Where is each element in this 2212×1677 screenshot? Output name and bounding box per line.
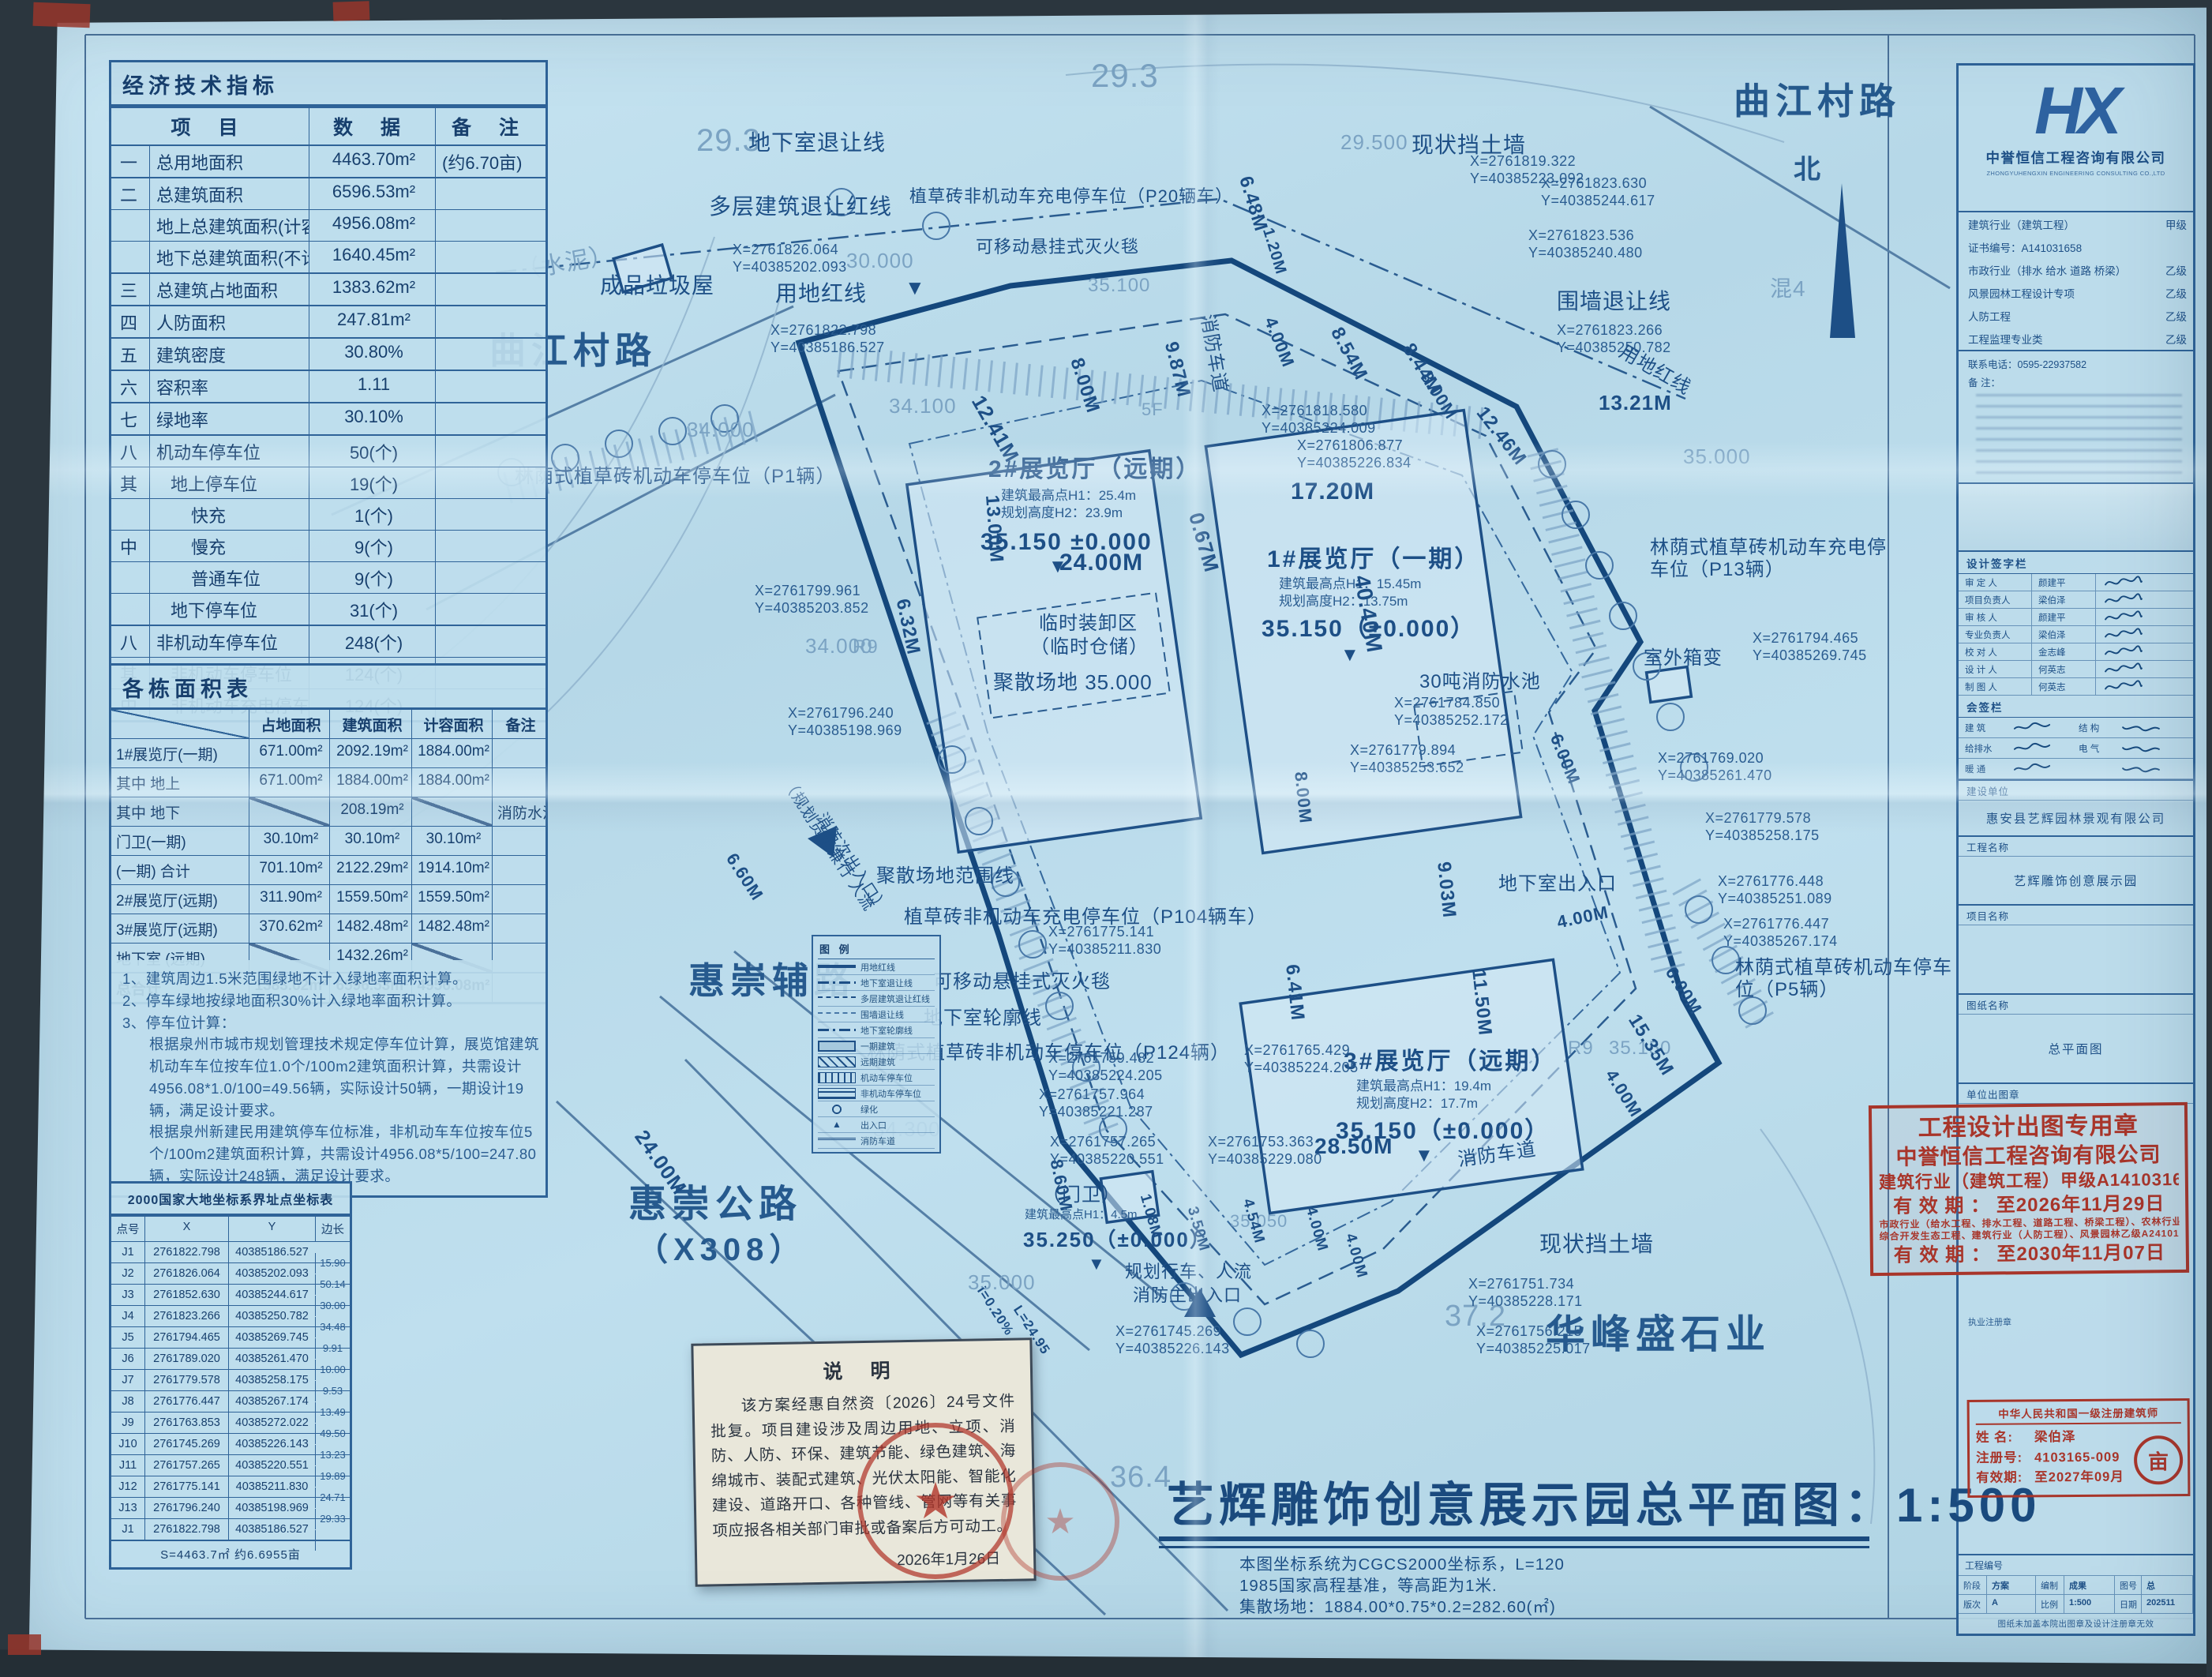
owner-label: 建设单位 xyxy=(1959,779,2193,801)
coordinate-rows: J1 2761822.798 40385186.527 15.90 J2 276… xyxy=(111,1241,350,1540)
contact-remarks: 联系电话：0595-22937582 备 注： xyxy=(1959,351,2193,484)
red-tape-mark xyxy=(333,1,370,21)
legend-swatch-icon xyxy=(818,981,856,984)
plan-annotation: X=2761753.363 xyxy=(1208,1134,1314,1150)
project-value: 艺辉雕饰创意展示园 xyxy=(1959,857,2193,904)
legend-item: 地下室轮廓线 xyxy=(818,1022,935,1038)
coordinate-row: J6 2761789.020 40385261.470 10.00 xyxy=(111,1348,350,1369)
coordinate-table-title: 2000国家大地坐标系界址点坐标表 xyxy=(109,1181,352,1214)
plan-annotation: Y=40385253.652 xyxy=(1350,760,1464,776)
drawing-subnote: 集散场地：1884.00*0.75*0.2=282.60(㎡) xyxy=(1239,1596,1565,1618)
contact-phone: 联系电话：0595-22937582 xyxy=(1959,351,2193,373)
title-underline xyxy=(1159,1536,1869,1541)
plan-annotation: 6.32M xyxy=(891,597,924,657)
plan-annotation: 35.250（±0.000） xyxy=(1023,1229,1212,1252)
plan-annotation: 2#展览厅（远期） xyxy=(988,456,1202,484)
drawing-name-value: 总平面图 xyxy=(1959,1015,2193,1082)
plan-annotation: 植草砖非机动车充电停车位（P20辆车） xyxy=(909,186,1233,206)
qualification-row: 风景园林工程设计专项 乙级 xyxy=(1959,281,2193,304)
countersign-row: 建 筑 结 构 xyxy=(1959,718,2193,738)
economic-row: 中 慢充 9(个) xyxy=(111,530,546,561)
legend-swatch-icon xyxy=(818,1120,856,1131)
coordinate-row: J9 2761763.853 40385272.022 49.50 xyxy=(111,1412,350,1433)
title-underline-2 xyxy=(1159,1546,1869,1548)
coordinate-row: J10 2761745.269 40385226.143 13.23 xyxy=(111,1433,350,1454)
footer-cell-value: 方案 xyxy=(1987,1576,2036,1595)
coordinate-table-footer: S=4463.7㎡ 约6.6955亩 xyxy=(111,1540,350,1567)
area-table-header: 占地面积 建筑面积 计容面积 备注 xyxy=(111,710,546,738)
plan-annotation: 0.67M xyxy=(1183,510,1223,576)
area-row: (一期) 合计 701.10m² 2122.29m² 1914.10m² xyxy=(111,855,546,884)
economic-row: 三 总建筑占地面积 1383.62m² xyxy=(111,272,546,305)
company-name: 中誉恒信工程咨询有限公司 xyxy=(1959,148,2193,167)
coordinate-table: 2000国家大地坐标系界址点坐标表 点号 X Y 边长 J1 2761822.7… xyxy=(109,1181,352,1570)
plan-annotation: 29.500 xyxy=(1340,131,1408,155)
economic-row: 六 容积率 1.11 xyxy=(111,370,546,402)
signature-row: 设 计 人 何英志 xyxy=(1959,661,2193,678)
plan-annotation: 34.000 xyxy=(687,418,755,442)
footer-cell-label: 图号 xyxy=(2115,1576,2142,1595)
registration-seal-label: 执业注册章 xyxy=(1968,1315,2011,1328)
owner-value: 惠安县艺辉园林景观有限公司 xyxy=(1959,801,2193,835)
plan-annotation: ▼ xyxy=(1415,1145,1434,1167)
footer-cell-label: 版次 xyxy=(1959,1595,1987,1614)
footer-cell-label: 日期 xyxy=(2115,1595,2142,1614)
area-row: 其中 地上 671.00m² 1884.00m² 1884.00m² xyxy=(111,767,546,797)
plan-annotation: Y=40385224.009 xyxy=(1262,420,1376,437)
qualifications: 建筑行业（建筑工程） 甲级 证书编号：A141031658 市政行业（排水 给水… xyxy=(1959,212,2193,351)
economic-table-title: 经济技术指标 xyxy=(109,60,548,104)
plan-annotation: 围墙退让线 xyxy=(1557,289,1671,314)
plan-annotation: Y=40385202.093 xyxy=(733,259,847,276)
qualification-row: 建筑行业（建筑工程） 甲级 xyxy=(1959,212,2193,235)
area-row: 2#展览厅(远期) 311.90m² 1559.50m² 1559.50m² xyxy=(111,884,546,914)
legend-item: 围墙退让线 xyxy=(818,1007,935,1022)
plan-annotation: 可移动悬挂式灭火毯 xyxy=(933,971,1111,993)
countersign-row: 给排水 电 气 xyxy=(1959,738,2193,759)
footer-cell-value: 成果 xyxy=(2064,1576,2115,1595)
legend-item: 机动车停车位 xyxy=(818,1070,935,1086)
legend-item: 多层建筑退让红线 xyxy=(818,991,935,1007)
handwritten-signature xyxy=(2101,662,2146,677)
plan-annotation: X=2761819.322 xyxy=(1470,153,1576,170)
economic-row: 七 绿地率 30.10% xyxy=(111,402,546,434)
plan-annotation: X=2761806.877 xyxy=(1297,437,1403,454)
economic-row: 快充 1(个) xyxy=(111,498,546,530)
plan-annotation: 6.41M xyxy=(1281,963,1309,1022)
coordinate-table-header: 点号 X Y 边长 xyxy=(111,1216,350,1241)
coordinate-row: J1 2761822.798 40385186.527 15.90 xyxy=(111,1241,350,1262)
area-row: 3#展览厅(远期) 370.62m² 1482.48m² 1482.48m² xyxy=(111,914,546,943)
plan-annotation: 36.4 xyxy=(1110,1461,1172,1495)
plan-annotation: 林荫式植草砖机动车停车位（P5辆） xyxy=(1735,957,1964,1000)
legend-item: 绿化 xyxy=(818,1101,935,1117)
footer-cell-label: 编制 xyxy=(2036,1576,2064,1595)
plan-annotation: Y=40385251.089 xyxy=(1718,891,1832,907)
plan-annotation: 4.00M xyxy=(1302,1205,1331,1254)
footer-cell-value: 202511 xyxy=(2142,1595,2193,1614)
plan-annotation: 规划高度H2：17.7m xyxy=(1356,1096,1478,1112)
plan-annotation: Y=40385186.527 xyxy=(770,340,885,356)
handwritten-signature xyxy=(2118,762,2164,776)
legend-swatch-icon xyxy=(818,1138,856,1149)
plan-annotation: 4.00M xyxy=(1602,1066,1647,1121)
plan-annotation: 8.00M xyxy=(1291,771,1316,824)
project-label: 工程名称 xyxy=(1959,835,2193,857)
red-tape-mark xyxy=(8,1634,41,1655)
legend-swatch-icon xyxy=(818,1029,856,1031)
design-release-stamp: 工程设计出图专用章中誉恒信工程咨询有限公司建筑行业（建筑工程）甲级A141031… xyxy=(1869,1102,2189,1276)
plan-annotation: 24.00M xyxy=(1059,550,1143,577)
signature-rows: 审 定 人 颜建平 项目负责人 梁伯泽 审 核 人 颜建平 专业负责人 梁伯泽 xyxy=(1959,574,2193,696)
plan-annotation: 9.03M xyxy=(1433,861,1460,919)
plan-annotation: X=2761751.734 xyxy=(1468,1276,1574,1292)
countersign-rows: 建 筑 结 构 给排水 电 气 暖 通 xyxy=(1959,718,2193,779)
legend-title: 图 例 xyxy=(818,940,935,959)
unit-seal-label: 单位出图章 xyxy=(1959,1082,2193,1104)
plan-annotation: X=2761769.020 xyxy=(1658,750,1764,767)
economic-row: 八 非机动车停车位 248(个) xyxy=(111,625,546,657)
economic-row: 其 地上停车位 19(个) xyxy=(111,467,546,498)
handwritten-signature xyxy=(2101,610,2146,625)
plan-annotation: 混4 xyxy=(1770,276,1806,302)
company-name-en: ZHONGYUHENGXIN ENGINEERING CONSULTING CO… xyxy=(1959,170,2193,177)
plan-annotation: Y=40385224.205 xyxy=(1048,1067,1163,1084)
signature-row: 项目负责人 梁伯泽 xyxy=(1959,591,2193,609)
plan-annotation: R9 xyxy=(1568,1037,1594,1060)
qualification-row: 证书编号：A141031658 xyxy=(1959,235,2193,258)
plan-annotation: 35.000 xyxy=(1683,445,1751,469)
footer-cell-value: 1:500 xyxy=(2064,1595,2115,1614)
red-tape-mark xyxy=(32,2,90,28)
plan-annotation: Y=40385220.551 xyxy=(1050,1151,1164,1168)
coordinate-row: J4 2761823.266 40385250.782 34.48 xyxy=(111,1305,350,1326)
item-value xyxy=(1959,925,2193,993)
plan-annotation: 6.00M xyxy=(1662,963,1707,1019)
plan-annotation: Y=40385228.171 xyxy=(1468,1293,1583,1310)
signature-row: 制 图 人 何英志 xyxy=(1959,678,2193,696)
footer-cell-label: 阶段 xyxy=(1959,1576,1987,1595)
plan-annotation: Y=40385267.174 xyxy=(1723,933,1838,950)
plan-annotation: 消防次出入口） xyxy=(812,810,890,917)
stamp-line: 工程设计出图专用章 xyxy=(1878,1110,2178,1144)
plan-annotation: 30吨消防水池 xyxy=(1419,671,1541,693)
handwritten-signature xyxy=(2009,762,2055,776)
plan-annotation: Y=40385224.205 xyxy=(1244,1060,1359,1076)
plan-annotation: 聚散场地范围线 xyxy=(876,865,1014,887)
plan-annotation: X=2761756.215 xyxy=(1476,1323,1582,1340)
company-header: HX 中誉恒信工程咨询有限公司 ZHONGYUHENGXIN ENGINEERI… xyxy=(1959,66,2193,212)
handwritten-signature xyxy=(2009,721,2055,735)
plan-annotation: X=2761799.961 xyxy=(755,583,860,599)
stamp-line: 中誉恒信工程咨询有限公司 xyxy=(1878,1141,2178,1172)
plan-annotation: Y=40385250.782 xyxy=(1557,340,1671,356)
stamp-line: 有 效 期 ： 至2026年11月29日 xyxy=(1879,1191,2179,1219)
handwritten-signature xyxy=(2118,741,2164,756)
plan-annotation: X=2761776.448 xyxy=(1718,873,1824,890)
plan-annotation: 11.50M xyxy=(1468,968,1496,1037)
plan-annotation: 4.00M xyxy=(1555,902,1610,932)
plan-annotation: 1.20M xyxy=(1258,226,1290,277)
signature-row: 审 核 人 颜建平 xyxy=(1959,609,2193,626)
coordinate-row: J13 2761796.240 40385198.969 29.33 xyxy=(111,1497,350,1518)
plan-annotation: X=2761757.265 xyxy=(1050,1134,1156,1150)
plan-annotation: 规划行车、人流 xyxy=(1125,1262,1252,1281)
note-line: 3、停车位计算： xyxy=(122,1012,539,1034)
footer-cells: 阶段方案编制成果图号总版次A比例1:500日期202511 xyxy=(1959,1576,2193,1614)
plan-annotation: 地下室退让线 xyxy=(748,130,886,156)
drawing-subnote: 本图坐标系统为CGCS2000坐标系，L=120 xyxy=(1239,1554,1565,1575)
handwritten-signature xyxy=(2009,741,2055,756)
plan-annotation: X=2761823.536 xyxy=(1528,227,1634,244)
coordinate-row: J12 2761775.141 40385211.830 24.71 xyxy=(111,1476,350,1497)
building-area-table: 各栋面积表 占地面积 建筑面积 计容面积 备注 1#展览厅(一期) 671.00… xyxy=(109,663,548,1004)
economic-row: 地下总建筑面积(不计容) 1640.45m² xyxy=(111,241,546,272)
legend-swatch-icon xyxy=(818,1056,856,1067)
plan-annotation: 惠崇公路 xyxy=(628,1183,802,1226)
economic-row: 八 机动车停车位 50(个) xyxy=(111,434,546,467)
area-row: 门卫(一期) 30.10m² 30.10m² 30.10m² xyxy=(111,826,546,855)
legend-items: 用地红线 地下室退让线 多层建筑退让红线 围墙退让线 地下室轮廓线 一期建筑 远… xyxy=(818,959,935,1149)
plan-annotation: X=2761779.894 xyxy=(1350,742,1456,759)
seal-star-icon: ★ xyxy=(913,1472,958,1531)
plan-annotation: 用地红线 xyxy=(775,281,867,306)
signature-row: 校 对 人 金志峰 xyxy=(1959,643,2193,661)
plan-annotation: X=2761823.266 xyxy=(1557,322,1663,339)
legend-item: 远期建筑 xyxy=(818,1054,935,1070)
plan-annotation: 3#展览厅（远期） xyxy=(1344,1049,1557,1076)
legend-swatch-icon xyxy=(818,1012,856,1023)
item-label: 项目名称 xyxy=(1959,904,2193,925)
legend-item: 一期建筑 xyxy=(818,1038,935,1054)
title-block-footer: 工程编号 阶段方案编制成果图号总版次A比例1:500日期202511 图纸未加盖… xyxy=(1959,1554,2193,1634)
plan-annotation: 聚散场地 35.000 xyxy=(993,671,1153,695)
economic-row: 四 人防面积 247.81m² xyxy=(111,305,546,337)
plan-annotation: X=2761796.240 xyxy=(788,705,894,722)
plan-annotation: X=2761822.798 xyxy=(770,322,876,339)
plan-annotation: 室外箱变 xyxy=(1644,647,1723,670)
coordinate-row: J8 2761776.447 40385267.174 13.49 xyxy=(111,1390,350,1412)
legend-swatch-icon xyxy=(818,996,856,1007)
official-round-seal-2: ★ xyxy=(1001,1462,1119,1581)
countersign-row: 暖 通 xyxy=(1959,759,2193,779)
plan-annotation: 13.21M xyxy=(1599,392,1672,415)
plan-annotation: 林荫式植草砖机动车停车位（P1辆） xyxy=(515,466,835,488)
plan-annotation: Y=40385240.480 xyxy=(1528,245,1643,261)
coordinate-row: J1 2761822.798 40385186.527 xyxy=(111,1518,350,1540)
plan-annotation: Y=40385252.172 xyxy=(1394,712,1509,729)
drawing-subnote: 1985国家高程基准，等高距为1米. xyxy=(1239,1575,1565,1596)
plan-annotation: X=2761776.447 xyxy=(1723,916,1829,932)
plan-annotation: 30.000 xyxy=(846,249,914,273)
plan-annotation: ▼ xyxy=(1340,644,1360,666)
plan-annotation: 建筑最高点H1：19.4m xyxy=(1356,1079,1491,1094)
drawing-main-title: 艺辉雕饰创意展示园总平面图：1:500 xyxy=(1167,1467,2041,1536)
plan-annotation: Y=40385225.017 xyxy=(1476,1341,1591,1357)
statement-title: 说 明 xyxy=(710,1353,1015,1387)
official-round-seal: ★ xyxy=(857,1423,1014,1579)
coordinate-row: J3 2761852.630 40385244.617 30.00 xyxy=(111,1284,350,1305)
legend-swatch-icon xyxy=(818,965,856,976)
plan-annotation: X=2761775.141 xyxy=(1048,924,1154,940)
footer-cell-value: 总 xyxy=(2142,1576,2193,1595)
plan-annotation: X=2761745.269 xyxy=(1115,1323,1221,1340)
plan-annotation: Y=40385226.143 xyxy=(1115,1341,1230,1357)
legend-item: 地下室退让线 xyxy=(818,975,935,991)
validity-note: 图纸未加盖本院出图章及设计注册章无效 xyxy=(1959,1614,2193,1634)
plan-annotation: 临时装卸区 xyxy=(1039,613,1138,635)
plan-annotation: ▼ xyxy=(905,276,926,300)
plan-annotation: 北 xyxy=(1794,155,1826,186)
plan-annotation: X=2761794.465 xyxy=(1753,630,1858,647)
illegible-remark-text xyxy=(1976,394,2182,476)
plan-annotation: 6.48M xyxy=(1235,174,1272,234)
registered-architect-stamp: 中华人民共和国一级注册建筑师 姓 名:梁伯泽 注册号:4103165-009 有… xyxy=(1967,1398,2191,1498)
legend-swatch-icon xyxy=(818,1072,856,1083)
plan-annotation: 28.50M xyxy=(1314,1134,1393,1159)
signature-row: 审 定 人 颜建平 xyxy=(1959,574,2193,591)
plan-annotation: 成品垃圾屋 xyxy=(600,273,714,298)
handwritten-signature xyxy=(2101,576,2146,590)
note-line: 1、建筑周边1.5米范围绿地不计入绿地率面积计算。 xyxy=(122,968,539,990)
plan-annotation: 林荫式植草砖机动车充电停车位（P13辆） xyxy=(1650,537,1895,580)
plan-annotation: 4.00M xyxy=(1341,1232,1370,1281)
legend-swatch-icon xyxy=(818,1041,856,1052)
plan-annotation: X=2761784.850 xyxy=(1394,695,1500,711)
economic-indicators-table: 经济技术指标 项 目 数 据 备 注 一 总用地面积 4463.70m² (约6… xyxy=(109,60,548,722)
plan-annotation: 8.54M xyxy=(1326,324,1372,384)
signature-section-title: 设计签字栏 xyxy=(1959,552,2193,574)
plan-annotation: 5F xyxy=(1142,400,1164,419)
qualification-row: 工程监理专业类 乙级 xyxy=(1959,327,2193,350)
handwritten-signature xyxy=(2101,628,2146,642)
plan-annotation: Y=40385258.175 xyxy=(1705,827,1820,844)
coordinate-row: J7 2761779.578 40385258.175 9.53 xyxy=(111,1369,350,1390)
remark-label: 备 注： xyxy=(1959,373,2193,392)
plan-annotation: 多层建筑退让红线 xyxy=(709,194,892,219)
legend: 图 例 用地红线 地下室退让线 多层建筑退让红线 围墙退让线 地下室轮廓线 一期… xyxy=(812,935,941,1154)
economic-table-rows: 一 总用地面积 4463.70m² (约6.70亩) 二 总建筑面积 6596.… xyxy=(111,144,546,720)
plan-annotation: 35.100 xyxy=(1088,275,1150,297)
plan-annotation: 12.41M xyxy=(966,392,1023,467)
plan-annotation: R9 xyxy=(853,636,879,658)
plan-annotation: 8.00M xyxy=(1066,355,1104,416)
plan-annotation: 建筑最高点H1：25.4m xyxy=(1001,488,1136,504)
plan-annotation: 建筑最高点H1：4.5m xyxy=(1025,1208,1138,1221)
plan-annotation: ▼ xyxy=(1088,1254,1106,1274)
note-line: 根据泉州新建民用建筑停车位标准，非机动车车位按车位5个/100m2建筑面积计算，… xyxy=(122,1121,539,1187)
plan-annotation: 规划高度H2：13.75m xyxy=(1279,594,1408,610)
plan-annotation: 9.87M xyxy=(1160,340,1194,400)
plan-annotation: 12.46M xyxy=(1472,403,1531,470)
economic-row: 地下停车位 31(个) xyxy=(111,593,546,625)
plan-annotation: Y=40385269.745 xyxy=(1753,647,1867,664)
plan-annotation: 现状挡土墙 xyxy=(1539,1232,1654,1257)
coordinate-row: J5 2761794.465 40385269.745 9.91 xyxy=(111,1326,350,1348)
economic-row: 二 总建筑面积 6596.53m² xyxy=(111,177,546,209)
plan-annotation: Y=40385261.470 xyxy=(1658,767,1772,784)
calculation-notes: 1、建筑周边1.5米范围绿地不计入绿地率面积计算。2、停车绿地按绿地面积30%计… xyxy=(109,960,548,1198)
plan-annotation: Y=40385198.969 xyxy=(788,722,902,739)
economic-table-header: 项 目 数 据 备 注 xyxy=(111,107,546,144)
plan-annotation: （X308） xyxy=(636,1232,806,1268)
plan-annotation: X=2761759.482 xyxy=(1048,1050,1154,1067)
economic-row: 地上总建筑面积(计容) 4956.08m² xyxy=(111,209,546,241)
plan-annotation: X=2761757.964 xyxy=(1039,1086,1145,1103)
plan-annotation: 规划高度H2：23.9m xyxy=(1001,505,1123,521)
qualification-row: 人防工程 乙级 xyxy=(1959,304,2193,327)
project-number-row: 工程编号 xyxy=(1959,1555,2193,1576)
legend-item: 用地红线 xyxy=(818,959,935,975)
drawing-subnotes: 本图坐标系统为CGCS2000坐标系，L=1201985国家高程基准，等高距为1… xyxy=(1239,1554,1565,1618)
plan-annotation: 4.00M xyxy=(1261,314,1299,370)
legend-swatch-icon xyxy=(818,1088,856,1099)
plan-annotation: 曲江村路 xyxy=(1734,81,1901,122)
architect-round-seal-icon: 亩 xyxy=(2134,1435,2183,1484)
plan-annotation: 1#展览厅（一期） xyxy=(1267,546,1480,574)
plan-annotation: Y=40385226.834 xyxy=(1297,455,1412,471)
fold-gap xyxy=(1959,484,2193,552)
stamp-line: 建筑行业（建筑工程）甲级A141031658 xyxy=(1879,1169,2179,1195)
company-logo: HX xyxy=(1959,80,2193,143)
plan-annotation: （临时仓储） xyxy=(1030,636,1149,658)
plan-annotation: X=2761779.578 xyxy=(1705,810,1811,827)
plan-annotation: X=2761826.064 xyxy=(733,242,838,258)
coordinate-row: J11 2761757.265 40385220.551 19.89 xyxy=(111,1454,350,1476)
plan-annotation: X=2761823.630 xyxy=(1541,175,1647,192)
handwritten-signature xyxy=(2118,721,2164,735)
plan-annotation: Y=40385244.617 xyxy=(1541,193,1655,209)
note-line: 根据泉州市城市规划管理技术规定停车位计算，展览馆建筑机动车车位按车位1.0个/1… xyxy=(122,1034,539,1121)
legend-item: 消防车道 xyxy=(818,1133,935,1149)
plan-annotation: Y=40385211.830 xyxy=(1048,941,1161,958)
photo-edge-right xyxy=(2206,0,2212,1677)
coordinate-row: J2 2761826.064 40385202.093 50.14 xyxy=(111,1262,350,1284)
plan-annotation: 消防车道 xyxy=(1196,313,1232,394)
economic-row: 一 总用地面积 4463.70m² (约6.70亩) xyxy=(111,144,546,177)
plan-annotation: Y=40385229.080 xyxy=(1208,1151,1322,1168)
area-row: 1#展览厅(一期) 671.00m² 2092.19m² 1884.00m² xyxy=(111,738,546,767)
seal-star-icon: ★ xyxy=(1044,1502,1075,1542)
area-row: 其中 地下 208.19m² 消防水池 xyxy=(111,797,546,826)
note-line: 2、停车绿地按绿地面积30%计入绿地率面积计算。 xyxy=(122,990,539,1012)
plan-annotation: 13.00M xyxy=(980,494,1007,564)
economic-row: 普通车位 9(个) xyxy=(111,561,546,593)
countersign-section-title: 会签栏 xyxy=(1959,696,2193,718)
area-table-title: 各栋面积表 xyxy=(109,663,548,707)
plan-annotation: 可移动悬挂式灭火毯 xyxy=(976,237,1139,257)
plan-annotation: X=2761818.580 xyxy=(1262,403,1367,419)
legend-item: 非机动车停车位 xyxy=(818,1086,935,1101)
economic-row: 五 建筑密度 30.80% xyxy=(111,337,546,370)
handwritten-signature xyxy=(2101,645,2146,659)
stamp-line: 有 效 期 ： 至2030年11月07日 xyxy=(1880,1240,2180,1268)
plan-annotation: 6.00M xyxy=(1547,731,1584,787)
plan-annotation: 34.100 xyxy=(889,395,957,418)
handwritten-signature xyxy=(2101,680,2146,694)
footer-cell-label: 比例 xyxy=(2036,1595,2064,1614)
plan-annotation: 消防主出入口 xyxy=(1133,1285,1242,1305)
plan-annotation: 地下室出入口 xyxy=(1498,873,1617,895)
plan-annotation: Y=40385221.287 xyxy=(1039,1104,1153,1120)
legend-swatch-icon xyxy=(818,1104,856,1115)
plan-annotation: 地下室轮廓线 xyxy=(924,1007,1042,1030)
signature-row: 专业负责人 梁伯泽 xyxy=(1959,626,2193,643)
plan-annotation: 6.60M xyxy=(722,850,767,904)
plan-annotation: Y=40385203.852 xyxy=(755,600,869,617)
blueprint-sheet: 曲江村路曲江村路北惠崇辅路惠崇公路（X308）华峰盛石业混4（水泥）29.329… xyxy=(0,0,2212,1677)
footer-cell-value: A xyxy=(1987,1595,2036,1614)
